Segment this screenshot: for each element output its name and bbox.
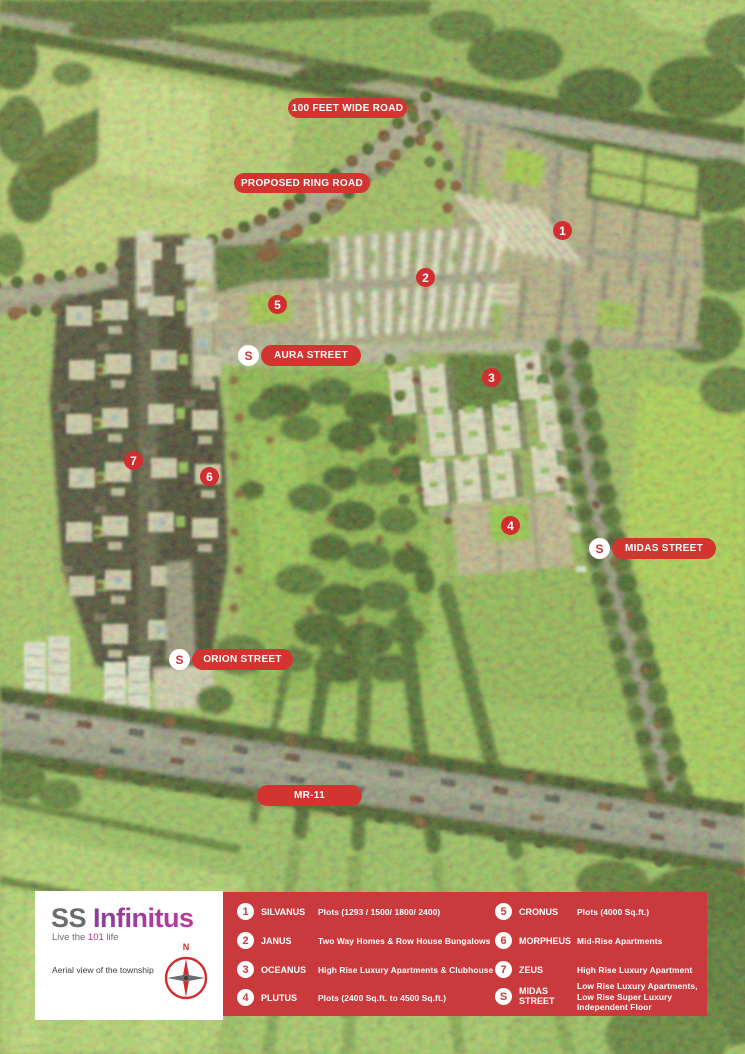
svg-text:N: N <box>183 942 190 952</box>
